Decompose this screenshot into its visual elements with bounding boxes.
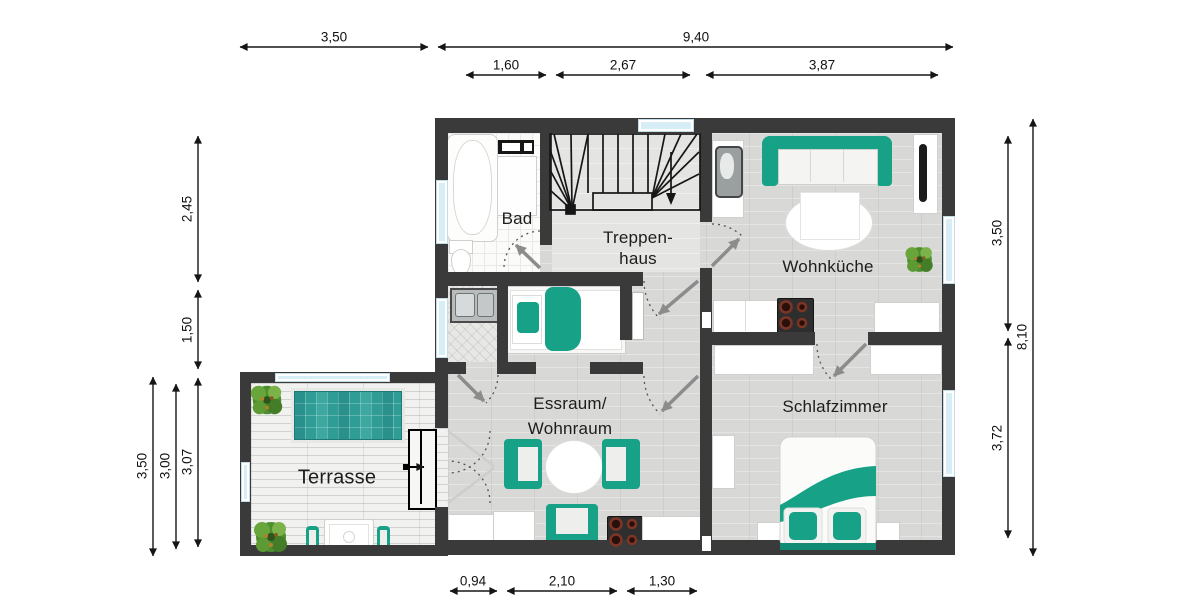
niche-bed-cushion [517,302,539,333]
window-right-kitchen [943,216,955,284]
window-top-stairwell [638,119,694,132]
room-label-treppenhaus-1: Treppen- [603,228,673,248]
utility-sink-basin-right [477,293,494,317]
washbasin-small [524,143,532,151]
room-label-bad: Bad [502,209,533,229]
dim-label-left-350: 3,50 [135,453,150,479]
kitchen-counter-right [874,302,940,334]
dim-label-top-387: 3,87 [809,58,835,73]
dim-label-left-300: 3,00 [158,453,173,479]
dining-chair-right-seat [606,447,626,481]
dim-label-top-160: 1,60 [493,58,519,73]
dining-table [545,440,603,494]
wardrobe-left [714,345,814,375]
wall-niche-right [620,286,632,340]
dining-chair-bottom-seat [556,508,588,534]
dim-label-left-150: 1,50 [180,317,195,343]
sofa-cushion-divider1 [810,150,811,182]
sofa-cushions [778,149,878,185]
wall-stair-kitchen [700,133,712,222]
dim-label-right-372: 3,72 [990,425,1005,451]
terrace-steps-divider [420,431,422,504]
terrace-chair-left-seat [309,530,316,545]
room-label-essraum-1: Essraum/ [533,394,606,414]
niche-radiator [632,292,644,340]
wall-bottom [435,540,955,555]
window-left-niche [436,298,448,358]
window-right-bedroom [943,390,955,477]
floorplan-canvas: Bad Treppen- haus Wohnküche Essraum/ Woh… [0,0,1200,600]
bathtub-basin [453,140,492,235]
terrace-glazing-left [241,462,250,502]
wall-kitchen-bedroom-right [868,332,942,345]
terrace-steps [408,429,437,510]
wall-essraum-stub-b [497,362,536,374]
terrace-chair-right-seat [380,530,387,545]
terrace-table-center [343,531,355,543]
wall-bad-stair [540,133,552,245]
room-label-terrasse: Terrasse [298,467,376,490]
wardrobe-right [870,345,942,375]
window-left-bathroom [436,180,448,244]
dim-label-right-350: 3,50 [990,220,1005,246]
dim-label-right-810: 8,10 [1015,324,1030,350]
utility-sink-basin-left [455,293,475,317]
dim-label-bot-130: 1,30 [649,574,675,589]
wall-essraum-stub-c [590,362,643,374]
niche-bed-blanket [545,287,581,351]
terrace-pool [291,388,405,443]
sofa-cushion-divider2 [843,150,844,182]
dim-label-left-307: 3,07 [180,449,195,475]
hob-kitchen [777,298,814,335]
sofa-arm-left [762,136,778,186]
kitchen-counter-left [713,300,779,334]
room-label-wohnkueche: Wohnküche [782,257,873,277]
room-label-treppenhaus-2: haus [619,249,657,269]
tv [919,144,927,202]
kitchen-table-top [800,192,860,240]
room-label-schlafzimmer: Schlafzimmer [782,397,887,417]
wall-terrace-bottom [240,545,448,556]
wall-right [942,118,955,555]
kitchen-sink-basin [720,153,734,179]
dim-label-bot-094: 0,94 [460,574,486,589]
wall-top [435,118,955,133]
wall-niche-left [497,286,508,374]
vent-center-wall [702,312,711,328]
shower-panel [497,156,537,216]
bedroom-cabinet [712,435,735,489]
dim-label-left-245: 2,45 [180,196,195,222]
sofa-arm-right [876,136,892,186]
wall-kitchen-bedroom-left [712,332,815,345]
dining-chair-left-seat [518,447,538,481]
terrace-glazing-top [275,373,390,382]
room-label-essraum-2: Wohnraum [528,419,612,439]
wall-bad-bottom [435,272,643,286]
dim-label-top-350: 3,50 [321,30,347,45]
washbasin [502,143,520,151]
dim-label-bot-210: 2,10 [549,574,575,589]
dim-label-top-267: 2,67 [610,58,636,73]
kitchen-counter-divider [745,301,746,331]
dim-label-top-940: 9,40 [683,30,709,45]
vent-bottom-wall [702,536,711,551]
